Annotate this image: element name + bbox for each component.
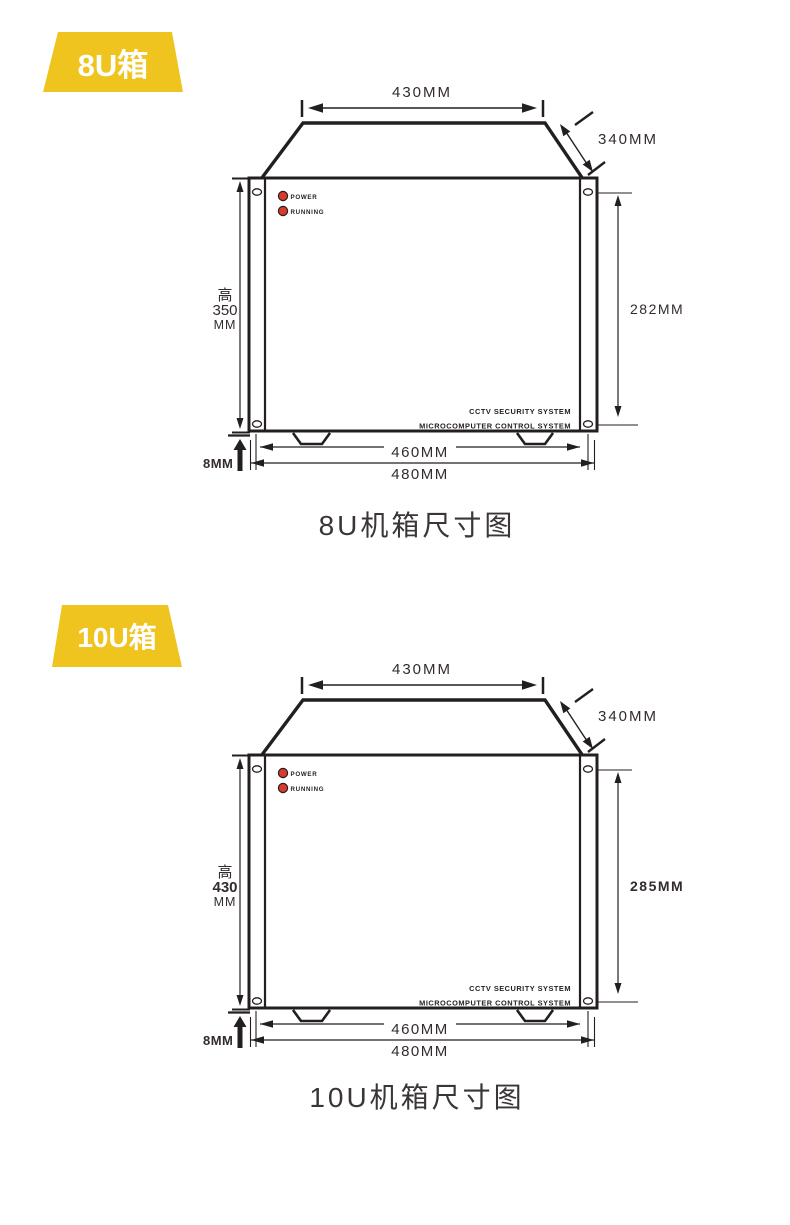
right-height-dimension-label: 282MM — [630, 301, 684, 317]
badge-10u: 10U箱 — [52, 605, 182, 667]
page-background: { "colors": { "badge_yellow": "#EFC41F",… — [0, 0, 790, 1225]
foot-height-dimension-label: 8MM — [203, 456, 233, 471]
caption-8u: 8U机箱尺寸图 — [177, 504, 657, 544]
depth-dimension-label: 340MM — [598, 708, 658, 725]
chassis-diagram-8u: 430MM 340MM 高 350 MM 282MM POWER RUNNING… — [180, 78, 740, 498]
top-width-dimension-label: 430MM — [392, 661, 452, 678]
brand-line2: MICROCOMPUTER CONTROL SYSTEM — [419, 422, 571, 431]
foot-height-dimension-label: 8MM — [203, 1033, 233, 1048]
caption-10u: 10U机箱尺寸图 — [177, 1076, 657, 1116]
height-dimension-unit: MM — [214, 895, 237, 909]
brand-line1: CCTV SECURITY SYSTEM — [469, 984, 571, 993]
chassis-drawing-10u — [228, 677, 638, 1048]
top-width-dimension-label: 430MM — [392, 84, 452, 101]
height-dimension-value: 350 — [212, 302, 237, 319]
badge-10u-label: 10U箱 — [77, 616, 156, 656]
outer-width-dimension-label: 480MM — [391, 1043, 449, 1060]
chassis-diagram-10u: 430MM 340MM 高 430 MM 285MM POWER RUNNING… — [180, 655, 740, 1075]
brand-line2: MICROCOMPUTER CONTROL SYSTEM — [419, 999, 571, 1008]
chassis-drawing-8u — [228, 100, 638, 471]
outer-width-dimension-label: 480MM — [391, 466, 449, 483]
power-led-label: POWER — [291, 771, 318, 778]
badge-8u: 8U箱 — [43, 32, 183, 92]
inner-width-dimension-label: 460MM — [391, 444, 449, 461]
running-led-label: RUNNING — [291, 209, 325, 216]
brand-line1: CCTV SECURITY SYSTEM — [469, 407, 571, 416]
height-dimension-unit: MM — [214, 318, 237, 332]
power-led-label: POWER — [291, 194, 318, 201]
inner-width-dimension-label: 460MM — [391, 1021, 449, 1038]
badge-8u-label: 8U箱 — [78, 40, 149, 85]
depth-dimension-label: 340MM — [598, 131, 658, 148]
right-height-dimension-label: 285MM — [630, 878, 684, 894]
running-led-label: RUNNING — [291, 786, 325, 793]
height-dimension-value: 430 — [212, 879, 237, 896]
